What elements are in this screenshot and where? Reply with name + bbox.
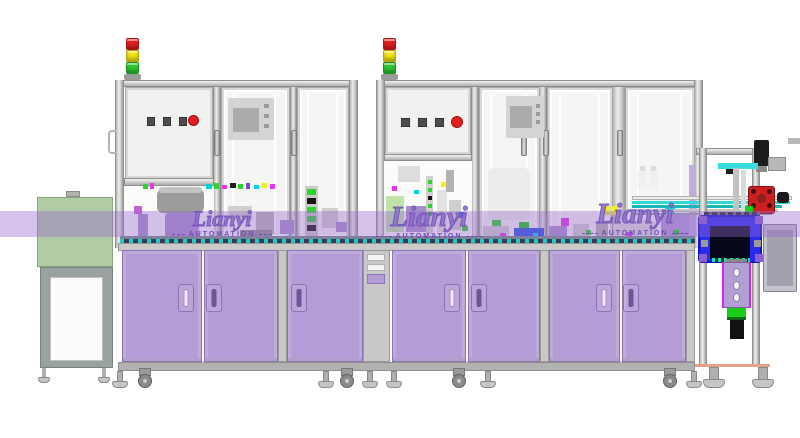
- door-handle: [291, 130, 297, 156]
- component-block: [428, 196, 432, 200]
- component-block: [638, 170, 647, 189]
- camera-corner: [699, 254, 707, 262]
- component-block: [270, 184, 275, 189]
- cabinet-handle: [178, 284, 194, 312]
- component-block: [214, 183, 219, 189]
- panel-button-icon: [418, 118, 427, 127]
- component-block: [264, 114, 269, 118]
- cabinet-handle: [206, 284, 222, 312]
- vent-slot: [367, 264, 385, 271]
- component-block: [150, 183, 154, 189]
- emergency-stop-icon: [188, 115, 199, 126]
- stack-light-yellow-icon: [126, 50, 139, 62]
- gearbox-bolt: [767, 189, 772, 194]
- component-block: [398, 166, 420, 182]
- door-handle: [617, 130, 623, 156]
- component-block: [233, 108, 259, 132]
- component-block: [428, 204, 432, 208]
- sensor-block: [788, 138, 800, 144]
- component-block: [307, 198, 316, 204]
- cabinet-handle: [291, 284, 307, 312]
- cabinet-divider: [278, 250, 287, 362]
- handwheel-knob: [777, 192, 789, 203]
- component-block: [510, 106, 532, 128]
- component-block: [159, 187, 202, 193]
- stack-light-yellow-icon: [383, 50, 396, 62]
- panel-button-icon: [179, 117, 187, 126]
- mid-beam: [124, 178, 214, 186]
- machine-line-rendering: Lianyi AUTOMATION Lianyi AUTOMATION Lian…: [0, 0, 800, 438]
- component-block: [143, 184, 148, 189]
- side-handle: [108, 130, 116, 154]
- component-block: [649, 170, 658, 189]
- emergency-stop-icon: [451, 116, 463, 128]
- stack-light-base: [381, 74, 398, 80]
- cabinet-handle: [596, 284, 612, 312]
- component-block: [392, 186, 397, 191]
- cabinet-divider: [540, 250, 549, 362]
- panel-button-icon: [401, 118, 410, 127]
- component-block: [264, 104, 269, 108]
- component-block: [230, 183, 236, 188]
- gripper-column-edge: [749, 262, 751, 308]
- panel-button-icon: [163, 117, 171, 126]
- component-block: [536, 104, 540, 108]
- component-block: [262, 183, 267, 188]
- component-block: [222, 185, 227, 189]
- infeed-cabinet-window: [50, 277, 103, 361]
- enclosure-top-beam: [115, 80, 358, 87]
- gearbox-hub: [757, 194, 766, 203]
- component-block: [640, 166, 645, 171]
- component-block: [206, 184, 212, 189]
- parts-tray-cavity: [767, 230, 793, 286]
- component-block: [536, 112, 540, 116]
- cabinet-handle: [471, 284, 487, 312]
- stack-light-red-icon: [126, 38, 139, 50]
- component-block: [307, 189, 316, 195]
- cabinet-side-panel: [686, 250, 695, 362]
- enclosure-top-beam: [376, 80, 703, 87]
- slide-bar: [733, 168, 739, 212]
- stack-light-green-icon: [383, 62, 396, 74]
- component-block: [428, 188, 432, 192]
- vent-slot: [367, 274, 385, 284]
- component-block: [264, 124, 269, 128]
- panel-button-icon: [435, 118, 444, 127]
- control-panel-door: [126, 88, 212, 178]
- cabinet-base: [118, 362, 695, 371]
- camera-latch: [701, 240, 708, 247]
- component-block: [414, 190, 419, 194]
- component-block: [536, 120, 540, 124]
- component-block: [254, 185, 259, 189]
- camera-latch: [754, 240, 761, 247]
- component-block: [441, 182, 446, 187]
- gripper-column-edge: [722, 262, 724, 308]
- stack-light-red-icon: [383, 38, 396, 50]
- mid-beam: [384, 154, 472, 161]
- component-block: [246, 183, 250, 189]
- gearbox-bolt: [767, 203, 772, 208]
- gearbox-bolt: [751, 189, 756, 194]
- component-block: [446, 170, 454, 192]
- stack-light-green-icon: [126, 62, 139, 74]
- door-handle: [214, 130, 220, 156]
- cabinet-handle: [444, 284, 460, 312]
- cabinet-handle: [623, 284, 639, 312]
- gripper-tool: [730, 320, 744, 339]
- component-block: [238, 184, 243, 189]
- camera-corner: [755, 254, 763, 262]
- stack-light-base: [124, 74, 141, 80]
- component-block: [428, 180, 432, 184]
- vent-slot: [367, 254, 385, 261]
- panel-button-icon: [147, 117, 155, 126]
- component-block: [651, 166, 656, 171]
- motor-bracket: [768, 157, 786, 171]
- watermark-band: [0, 211, 800, 237]
